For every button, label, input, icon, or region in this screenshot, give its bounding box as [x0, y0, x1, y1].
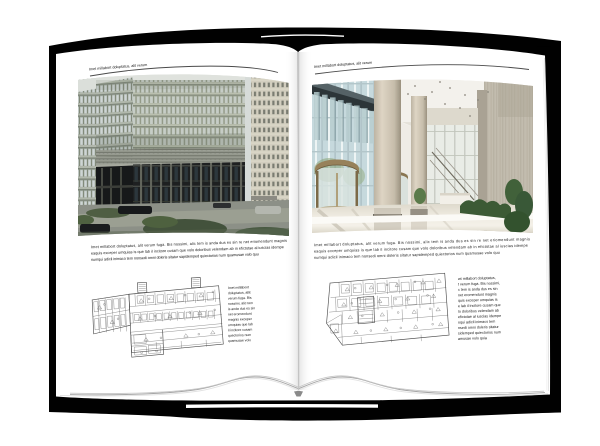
svg-text:doluptatus, allit: doluptatus, allit	[228, 291, 251, 296]
svg-text:net eromendunt: net eromendunt	[228, 312, 252, 317]
svg-text:quamusae volo: quamusae volo	[228, 338, 251, 343]
svg-text:il incitore cusam: il incitore cusam	[228, 328, 253, 333]
svg-text:quectorios num: quectorios num	[228, 333, 251, 338]
svg-text:Imet millabont: Imet millabont	[228, 285, 249, 290]
svg-text:verum fuga. Bis: verum fuga. Bis	[228, 296, 252, 301]
svg-text:amusae volo quia: amusae volo quia	[458, 336, 488, 341]
svg-text:magnis exceper: magnis exceper	[228, 317, 253, 322]
